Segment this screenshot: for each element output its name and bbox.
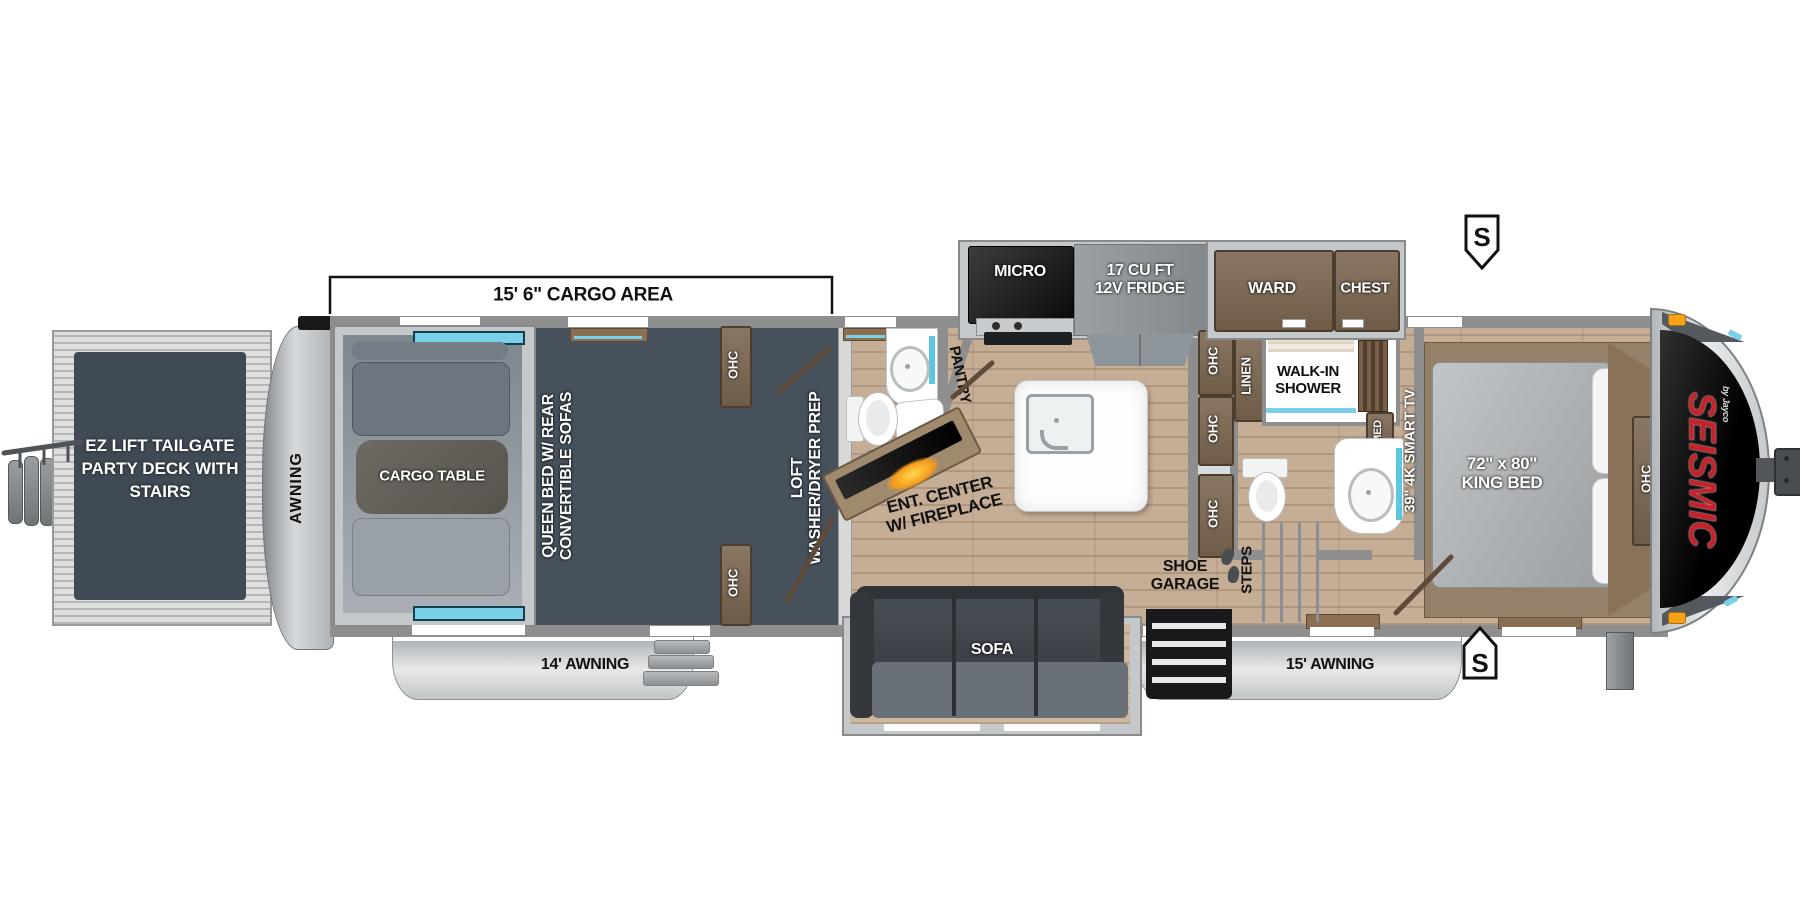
range-shelf <box>984 332 1072 345</box>
marker-light <box>1668 612 1686 624</box>
ohc-label: OHC <box>1207 347 1222 375</box>
microwave <box>968 246 1074 324</box>
loft-label-line1: LOFT <box>789 391 807 564</box>
sofa-back-top <box>856 586 1124 599</box>
entry-step-tread <box>1152 641 1226 647</box>
linen-label: LINEN <box>1240 357 1255 395</box>
deck-stair-tread <box>8 460 23 524</box>
drawer-mark <box>1282 319 1306 328</box>
cargo-area-dimension-label: 15' 6" CARGO AREA <box>493 284 673 305</box>
sofa-label: SOFA <box>971 641 1013 659</box>
window <box>568 317 648 327</box>
brand-byline: by Jayco <box>1721 386 1731 422</box>
toilet-bowl-inner <box>866 400 890 436</box>
shower-label-line1: WALK-IN <box>1275 364 1341 381</box>
cargo-door-opening <box>650 626 710 636</box>
queen-bed-label-line1: QUEEN BED W/ REAR <box>540 392 558 560</box>
bath2-wall-stub <box>1316 550 1372 560</box>
entry-step-tread <box>1152 659 1226 665</box>
window-sill <box>570 328 648 342</box>
window <box>845 317 896 327</box>
hitch-rivet <box>1784 478 1789 483</box>
chest-label: CHEST <box>1340 281 1389 298</box>
landing-gear-leg <box>1606 632 1634 690</box>
marker-light <box>1668 314 1686 326</box>
wardrobe-label: WARD <box>1248 280 1296 298</box>
ohc-label: OHC <box>1207 415 1222 443</box>
deck-stair-tread <box>24 456 39 526</box>
king-bed-line2: KING BED <box>1462 473 1543 492</box>
cargo-step <box>654 640 710 654</box>
refrigerator-label: 17 CU FT 12V FRIDGE <box>1095 262 1185 298</box>
window <box>412 625 525 635</box>
window <box>1502 627 1576 636</box>
cooktop-knob <box>992 322 1000 330</box>
shower-door <box>1358 340 1388 412</box>
entry-step-tread <box>1152 677 1226 683</box>
cargo-step <box>648 655 714 669</box>
deck-label-line3: PARTY DECK <box>81 459 190 478</box>
queen-bed-label-line2: CONVERTIBLE SOFAS <box>558 392 576 560</box>
refrigerator-doors <box>1080 334 1200 366</box>
ohc-label: OHC <box>727 351 742 379</box>
awning-14-label: 14' AWNING <box>541 656 629 674</box>
queen-bed-label: QUEEN BED W/ REAR CONVERTIBLE SOFAS <box>540 392 576 560</box>
convertible-sofa-cushion <box>352 518 510 596</box>
smart-tv-label: 39" 4K SMART TV <box>1403 389 1420 512</box>
drawer-mark <box>1342 319 1364 328</box>
fridge-label-line2: 12V FRIDGE <box>1095 280 1185 298</box>
step-line <box>1298 522 1301 622</box>
cargo-table-label: CARGO TABLE <box>379 469 485 486</box>
sofa-seat <box>872 662 1128 718</box>
sink-drain <box>1054 418 1059 423</box>
vanity-sink <box>1348 468 1394 522</box>
toilet-bowl-inner <box>1256 480 1278 512</box>
steps-label: STEPS <box>1240 546 1257 594</box>
sink-drain <box>905 364 910 369</box>
hitch-rivet <box>1784 456 1789 461</box>
loft-label: LOFT WASHER/DRYER PREP <box>789 391 825 564</box>
cargo-step <box>643 671 719 686</box>
sofa-seam <box>952 592 956 716</box>
ohc-label: OHC <box>727 569 742 597</box>
convertible-sofa-cushion <box>352 362 510 436</box>
rear-awning-label: AWNING <box>288 452 306 524</box>
kitchen-corridor-wall <box>1188 328 1198 560</box>
speaker-marker <box>1466 216 1498 268</box>
speaker-marker-letter: S <box>1473 222 1490 252</box>
fridge-label-line1: 17 CU FT <box>1095 262 1185 280</box>
ohc-label: OHC <box>1207 500 1222 528</box>
step-line <box>1262 522 1265 622</box>
window <box>1310 627 1374 636</box>
microwave-label: MICRO <box>994 263 1046 281</box>
king-bed-label: 72" x 80" KING BED <box>1462 454 1543 492</box>
sofa-armrest <box>850 592 874 718</box>
shoe-garage-line1: SHOE <box>1151 558 1219 576</box>
slide-window <box>413 606 525 621</box>
window <box>1408 317 1462 327</box>
shower-label: WALK-IN SHOWER <box>1275 364 1341 398</box>
sofa-backrest <box>352 342 508 360</box>
window <box>884 724 980 731</box>
awning-15-label: 15' AWNING <box>1286 656 1374 674</box>
party-deck-label: EZ LIFT TAILGATE PARTY DECK WITH STAIRS <box>78 434 242 503</box>
rv-floorplan-diagram: EZ LIFT TAILGATE PARTY DECK WITH STAIRS … <box>0 0 1800 920</box>
shower-label-line2: SHOWER <box>1275 381 1341 398</box>
window-accent <box>574 336 642 339</box>
deck-label-line2: TAILGATE <box>152 436 234 455</box>
fridge-door-divider <box>1139 334 1141 366</box>
sink-drain <box>1366 490 1371 495</box>
deck-label-line1: EZ LIFT <box>85 436 147 455</box>
king-bed-line1: 72" x 80" <box>1462 454 1543 473</box>
speaker-marker-letter: S <box>1471 648 1488 678</box>
sofa-seam <box>1034 592 1038 716</box>
shower-accent <box>1266 408 1356 413</box>
shoe-garage-line2: GARAGE <box>1151 576 1219 594</box>
bath-sink <box>890 346 930 392</box>
step-line <box>1280 522 1283 622</box>
step-line <box>1316 522 1319 622</box>
window <box>1004 724 1100 731</box>
counter-accent <box>929 336 935 384</box>
cooktop-knob <box>1014 322 1022 330</box>
brand-logo: SEISMIC <box>1680 392 1723 548</box>
awning-roller-cap <box>298 316 334 330</box>
sofa-back <box>856 586 1124 674</box>
shoe-garage-label: SHOE GARAGE <box>1151 558 1219 594</box>
entry-step-tread <box>1152 623 1226 629</box>
window-accent <box>846 335 885 338</box>
awning-gap <box>393 637 693 641</box>
